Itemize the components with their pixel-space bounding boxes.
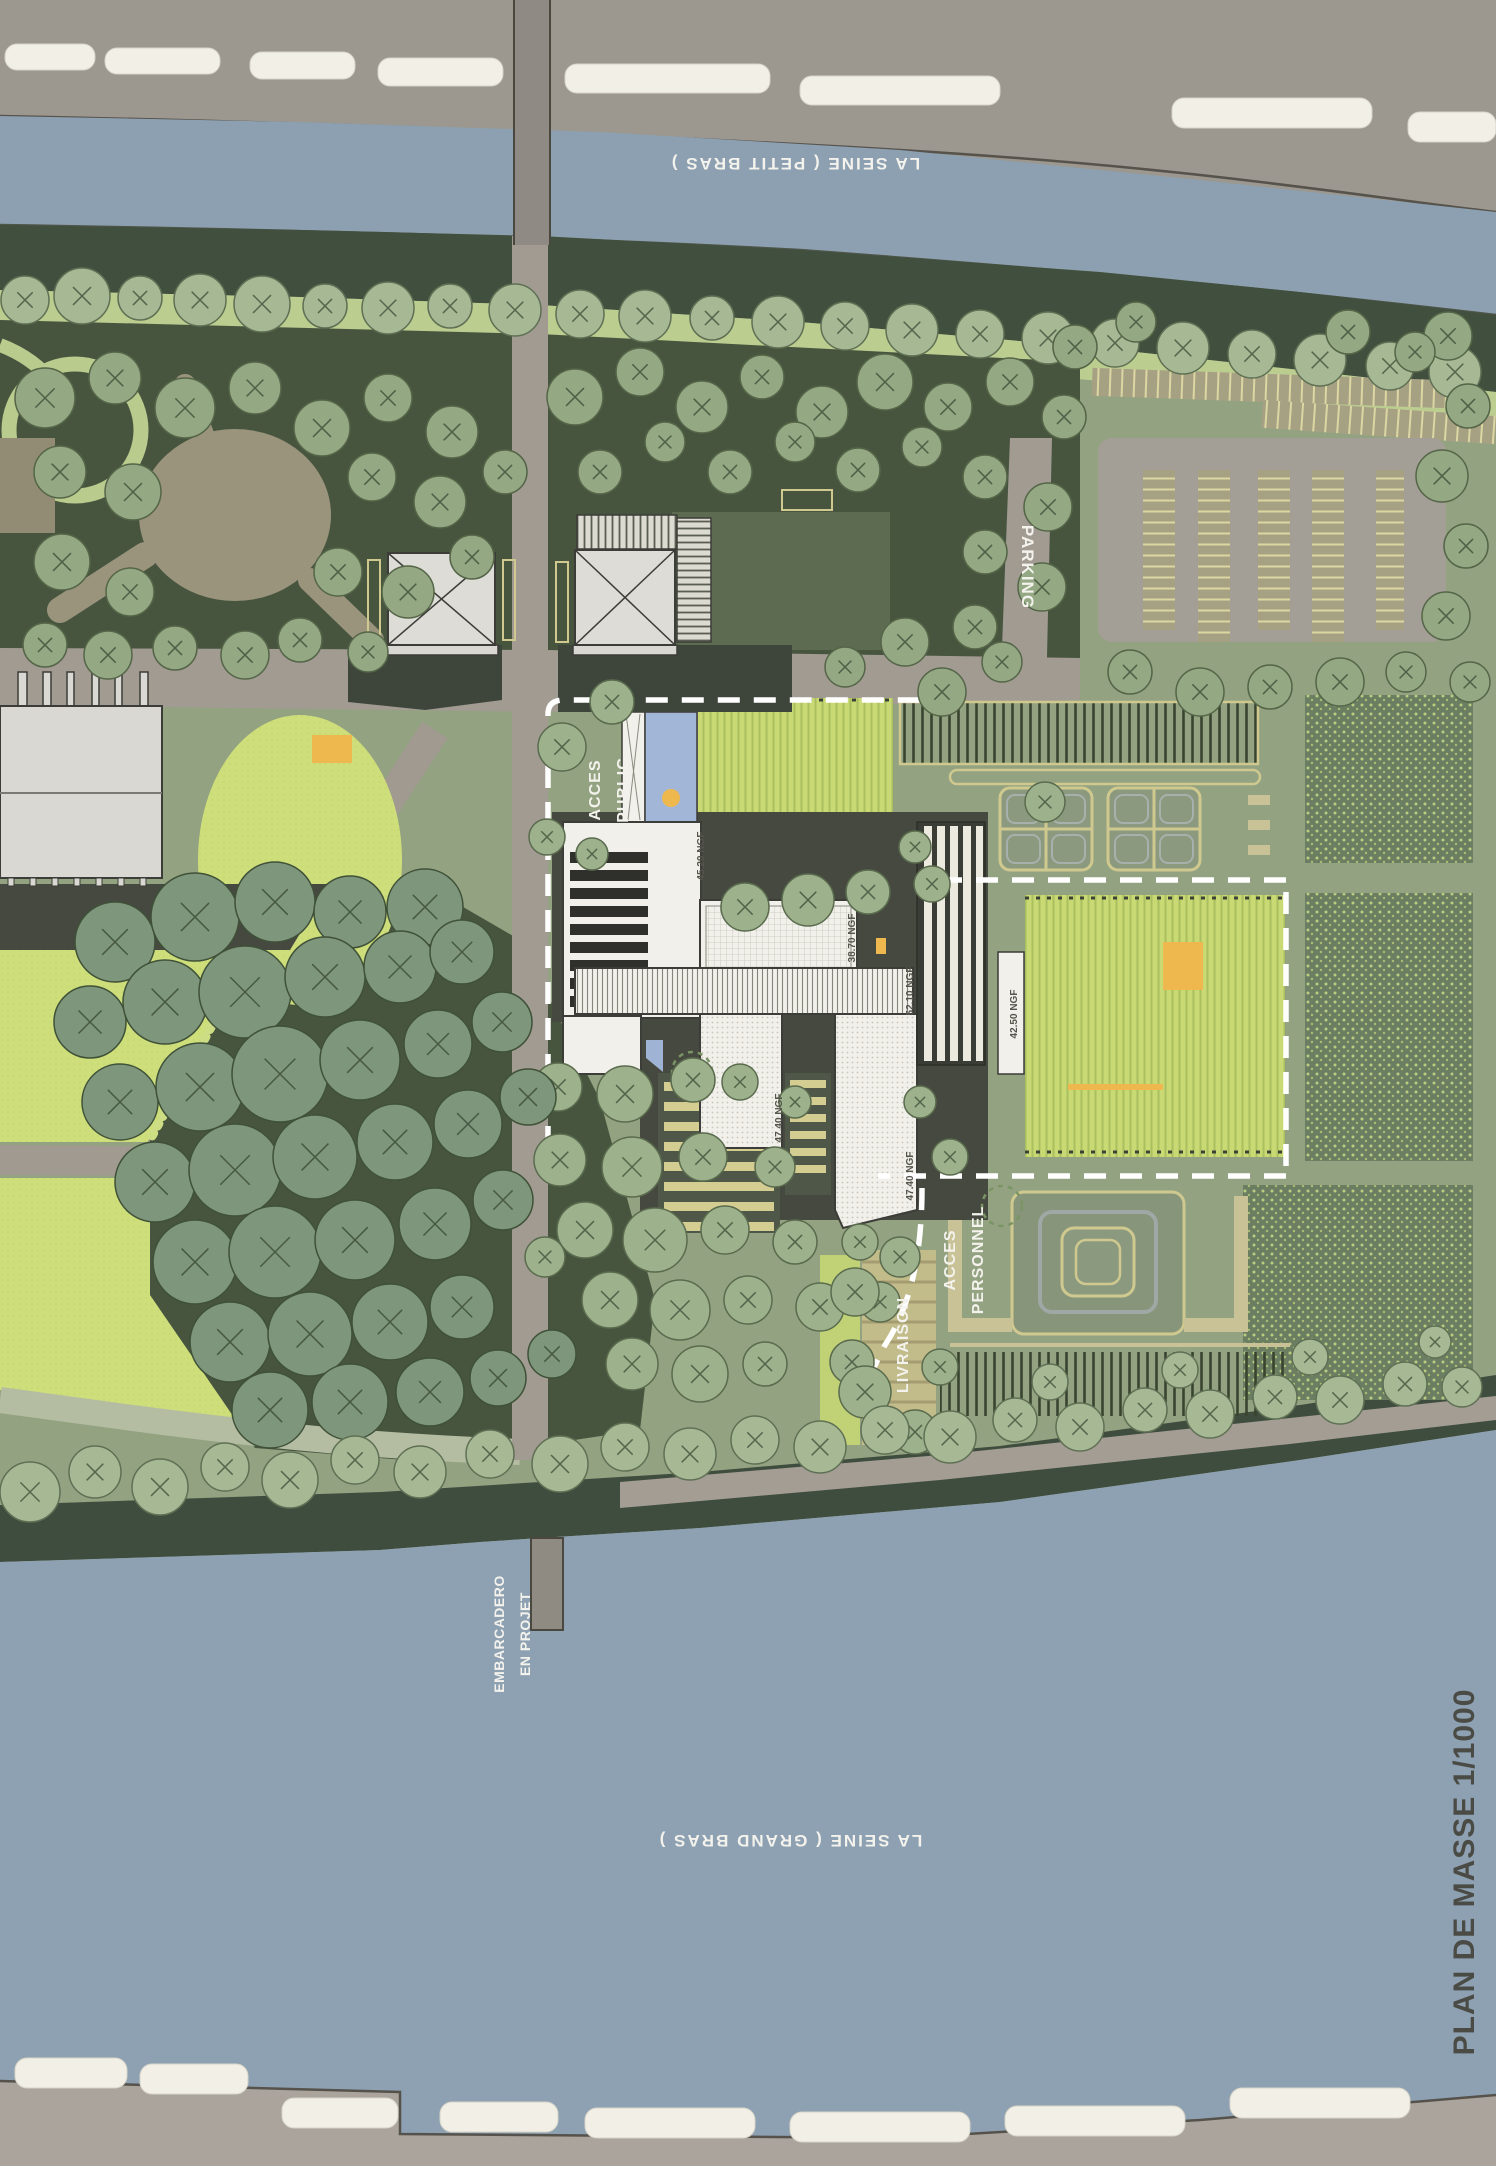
label-embarcadero-2: EN PROJET [517, 1592, 533, 1676]
tree [473, 1170, 533, 1230]
tree [234, 276, 290, 332]
label-acces-personnel-2: PERSONNEL [970, 1206, 987, 1315]
tree [932, 1139, 968, 1175]
label-parking: PARKING [1018, 525, 1037, 609]
tree [825, 647, 865, 687]
tree [132, 1459, 188, 1515]
tree [190, 1302, 270, 1382]
label-acces-public-2: PUBLIC [615, 757, 632, 823]
tree [578, 450, 622, 494]
tree [348, 632, 388, 672]
tree [430, 1275, 494, 1339]
tree [362, 282, 414, 334]
tree [235, 862, 315, 942]
tree [23, 623, 67, 667]
tree [836, 448, 880, 492]
tree [794, 1421, 846, 1473]
tree [1326, 310, 1370, 354]
tree [404, 1010, 472, 1078]
tree [262, 1452, 318, 1508]
tree [285, 937, 365, 1017]
crop-rows-south [940, 1352, 1290, 1416]
elevation-building-b: 38.70 NGF [847, 914, 858, 963]
tree [782, 874, 834, 926]
tree [483, 450, 527, 494]
tree [54, 986, 126, 1058]
tree [151, 873, 239, 961]
tree [886, 304, 938, 356]
tree [556, 290, 604, 338]
tree [547, 369, 603, 425]
tree [904, 1086, 936, 1118]
tree [963, 530, 1007, 574]
label-livraison: LIVRAISON [895, 1297, 912, 1393]
tree [902, 427, 942, 467]
lawn-marker-orange [312, 735, 352, 763]
tree [842, 1224, 878, 1260]
tree [268, 1292, 352, 1376]
tree [1024, 483, 1072, 531]
tree [740, 355, 784, 399]
tree [174, 274, 226, 326]
label-acces-personnel-1: ACCES [942, 1229, 959, 1290]
tree [352, 1284, 428, 1360]
barge [800, 76, 1000, 105]
tree [232, 1372, 308, 1448]
tree [590, 680, 634, 724]
tree [1248, 665, 1292, 709]
tree [189, 1124, 281, 1216]
barge [15, 2058, 127, 2088]
tree [880, 1237, 920, 1277]
tree [229, 362, 281, 414]
tree [679, 1133, 727, 1181]
tree [1316, 1376, 1364, 1424]
barge [378, 58, 503, 86]
tree [1, 276, 49, 324]
tree [645, 422, 685, 462]
tree [722, 1064, 758, 1100]
site-plan-map: LA SEINE ( PETIT BRAS ) LA SEINE ( GRAND… [0, 0, 1496, 2166]
tree [1162, 1352, 1198, 1388]
tree [123, 960, 207, 1044]
tree [1442, 1367, 1482, 1407]
tree [914, 866, 950, 902]
site-plan-page: LA SEINE ( PETIT BRAS ) LA SEINE ( GRAND… [0, 0, 1496, 2166]
tree [623, 1208, 687, 1272]
tree [1186, 1390, 1234, 1438]
tree [1042, 395, 1086, 439]
tree [597, 1066, 653, 1122]
tree [1025, 782, 1065, 822]
tree [1292, 1339, 1328, 1375]
barge [1005, 2106, 1185, 2136]
elevation-building-a: 45.20 NGF [696, 832, 707, 881]
tree [1108, 650, 1152, 694]
tree [382, 566, 434, 618]
tree [357, 1104, 433, 1180]
tree [331, 1436, 379, 1484]
tree [616, 348, 664, 396]
tree [755, 1147, 795, 1187]
tree [775, 422, 815, 462]
tree [426, 406, 478, 458]
tree [857, 354, 913, 410]
tree [364, 931, 436, 1003]
tree [582, 1272, 638, 1328]
tree [348, 453, 396, 501]
tree [156, 1043, 244, 1131]
building-c-long-hall [575, 968, 913, 1014]
tree [69, 1446, 121, 1498]
tree [320, 1020, 400, 1100]
label-embarcadero-1: EMBARCADERO [491, 1575, 507, 1693]
pool-marker-orange [662, 789, 680, 807]
tree [986, 358, 1034, 406]
tree [721, 883, 769, 931]
tree [881, 618, 929, 666]
tree [731, 1416, 779, 1464]
tree [34, 534, 90, 590]
barge [1408, 112, 1496, 142]
tree [1032, 1364, 1068, 1400]
tree [0, 1462, 60, 1522]
tree [1316, 658, 1364, 706]
tree [676, 381, 728, 433]
tree [846, 870, 890, 914]
tree [1253, 1375, 1297, 1419]
tree [1056, 1403, 1104, 1451]
tree [1053, 325, 1097, 369]
tree [924, 383, 972, 431]
tree [221, 631, 269, 679]
tree [54, 268, 110, 324]
label-river-grand-bras: LA SEINE ( GRAND BRAS ) [658, 1831, 923, 1850]
tree [105, 464, 161, 520]
tree [394, 1446, 446, 1498]
barge [105, 48, 220, 74]
tree [428, 284, 472, 328]
tree [278, 618, 322, 662]
tree [982, 642, 1022, 682]
tree [1116, 302, 1156, 342]
tree [312, 1364, 388, 1440]
tree [1446, 384, 1490, 428]
tree [153, 626, 197, 670]
tree [924, 1411, 976, 1463]
building-a-wing [563, 1016, 641, 1074]
barge [565, 64, 770, 93]
tree [1419, 1326, 1451, 1358]
tree [434, 1090, 502, 1158]
tree [671, 1058, 715, 1102]
tree [273, 1115, 357, 1199]
tree [1444, 524, 1488, 568]
barge [282, 2098, 398, 2128]
tree [1383, 1362, 1427, 1406]
tree [606, 1338, 658, 1390]
elevation-building-d: 47.40 NGF [774, 1094, 785, 1143]
tree [831, 1268, 879, 1316]
tree [993, 1398, 1037, 1442]
tree [89, 352, 141, 404]
tree [155, 378, 215, 438]
tree [956, 310, 1004, 358]
tree [430, 920, 494, 984]
tree [861, 1406, 909, 1454]
tree [82, 1064, 158, 1140]
tree [773, 1220, 817, 1264]
elevation-building-e: 47.40 NGF [905, 1152, 916, 1201]
tree [466, 1430, 514, 1478]
tree [106, 568, 154, 616]
label-river-petit-bras: LA SEINE ( PETIT BRAS ) [670, 154, 920, 173]
barge [790, 2112, 970, 2142]
tree [1123, 1388, 1167, 1432]
tree [1176, 668, 1224, 716]
tree [472, 992, 532, 1052]
tree [532, 1436, 588, 1492]
tree [918, 668, 966, 716]
tree [601, 1423, 649, 1471]
barge [585, 2108, 755, 2138]
tree [500, 1069, 556, 1125]
bridge [514, 0, 550, 245]
striped-field-east [1025, 895, 1285, 1157]
tree [153, 1220, 237, 1304]
tree [199, 946, 291, 1038]
tree [229, 1206, 321, 1298]
tree [1422, 592, 1470, 640]
barge [1230, 2088, 1410, 2118]
tree [690, 296, 734, 340]
field-marker-orange [1163, 942, 1203, 990]
tree [1395, 332, 1435, 372]
elevation-building-g: 42.50 NGF [1009, 990, 1020, 1039]
tree [619, 290, 671, 342]
tree [1228, 330, 1276, 378]
tree [650, 1280, 710, 1340]
tree [538, 723, 586, 771]
tree [1157, 322, 1209, 374]
tree [602, 1137, 662, 1197]
tree [701, 1206, 749, 1254]
embarcadero-pier [531, 1538, 563, 1630]
tree [899, 831, 931, 863]
barge [140, 2064, 248, 2094]
tree [708, 450, 752, 494]
tree [115, 1142, 195, 1222]
tree [414, 476, 466, 528]
barge [1172, 98, 1372, 128]
tree [450, 535, 494, 579]
tree [84, 631, 132, 679]
tree [821, 302, 869, 350]
tree [314, 548, 362, 596]
tree [1450, 662, 1490, 702]
tree [489, 284, 541, 336]
tree [963, 455, 1007, 499]
tree [724, 1276, 772, 1324]
barge [250, 52, 355, 79]
label-acces-public-1: ACCES [587, 759, 604, 820]
page-title: PLAN DE MASSE 1/1000 [1448, 1689, 1481, 2056]
tree [470, 1350, 526, 1406]
tree [672, 1346, 728, 1402]
tree [525, 1237, 565, 1277]
tree [752, 296, 804, 348]
tree [576, 838, 608, 870]
tree [118, 276, 162, 320]
tree [953, 605, 997, 649]
tree [922, 1349, 958, 1385]
tree [315, 1200, 395, 1280]
tree [34, 446, 86, 498]
barge [440, 2102, 558, 2132]
tree [303, 284, 347, 328]
tree [201, 1443, 249, 1491]
parterre-garden-2 [1108, 788, 1200, 870]
tree [528, 1330, 576, 1378]
tree [743, 1342, 787, 1386]
tree [396, 1358, 464, 1426]
tree [232, 1026, 328, 1122]
tree [294, 400, 350, 456]
tree [664, 1428, 716, 1480]
tree [529, 819, 565, 855]
elevation-building-c: 52.10 NGF [905, 967, 916, 1016]
tree [364, 374, 412, 422]
tree [1386, 652, 1426, 692]
tree [557, 1202, 613, 1258]
tree [534, 1134, 586, 1186]
tree [15, 368, 75, 428]
tree [399, 1188, 471, 1260]
barge [5, 44, 95, 70]
tree [1416, 450, 1468, 502]
